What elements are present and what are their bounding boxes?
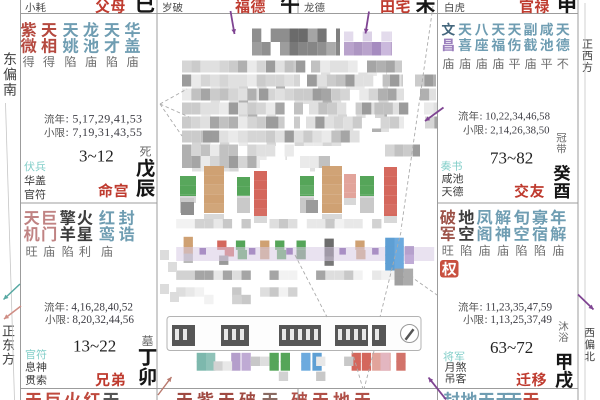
svg-text:13~22: 13~22 [73, 337, 116, 356]
svg-text:: 11,23,35,47,59: : 11,23,35,47,59 [480, 302, 553, 314]
svg-text:: 1,13,25,37,49: : 1,13,25,37,49 [485, 314, 553, 326]
svg-text:3~12: 3~12 [79, 147, 114, 166]
svg-text:: 8,20,32,44,56: : 8,20,32,44,56 [67, 314, 135, 326]
svg-text:73~82: 73~82 [490, 149, 533, 168]
svg-text:: 5,17,29,41,53: : 5,17,29,41,53 [66, 112, 143, 126]
svg-text:63~72: 63~72 [490, 338, 533, 357]
svg-text:: 2,14,26,38,50: : 2,14,26,38,50 [485, 124, 550, 136]
svg-text:: 10,22,34,46,58: : 10,22,34,46,58 [480, 111, 550, 123]
svg-text:: 4,16,28,40,52: : 4,16,28,40,52 [66, 302, 133, 314]
svg-text:: 7,19,31,43,55: : 7,19,31,43,55 [66, 125, 143, 139]
